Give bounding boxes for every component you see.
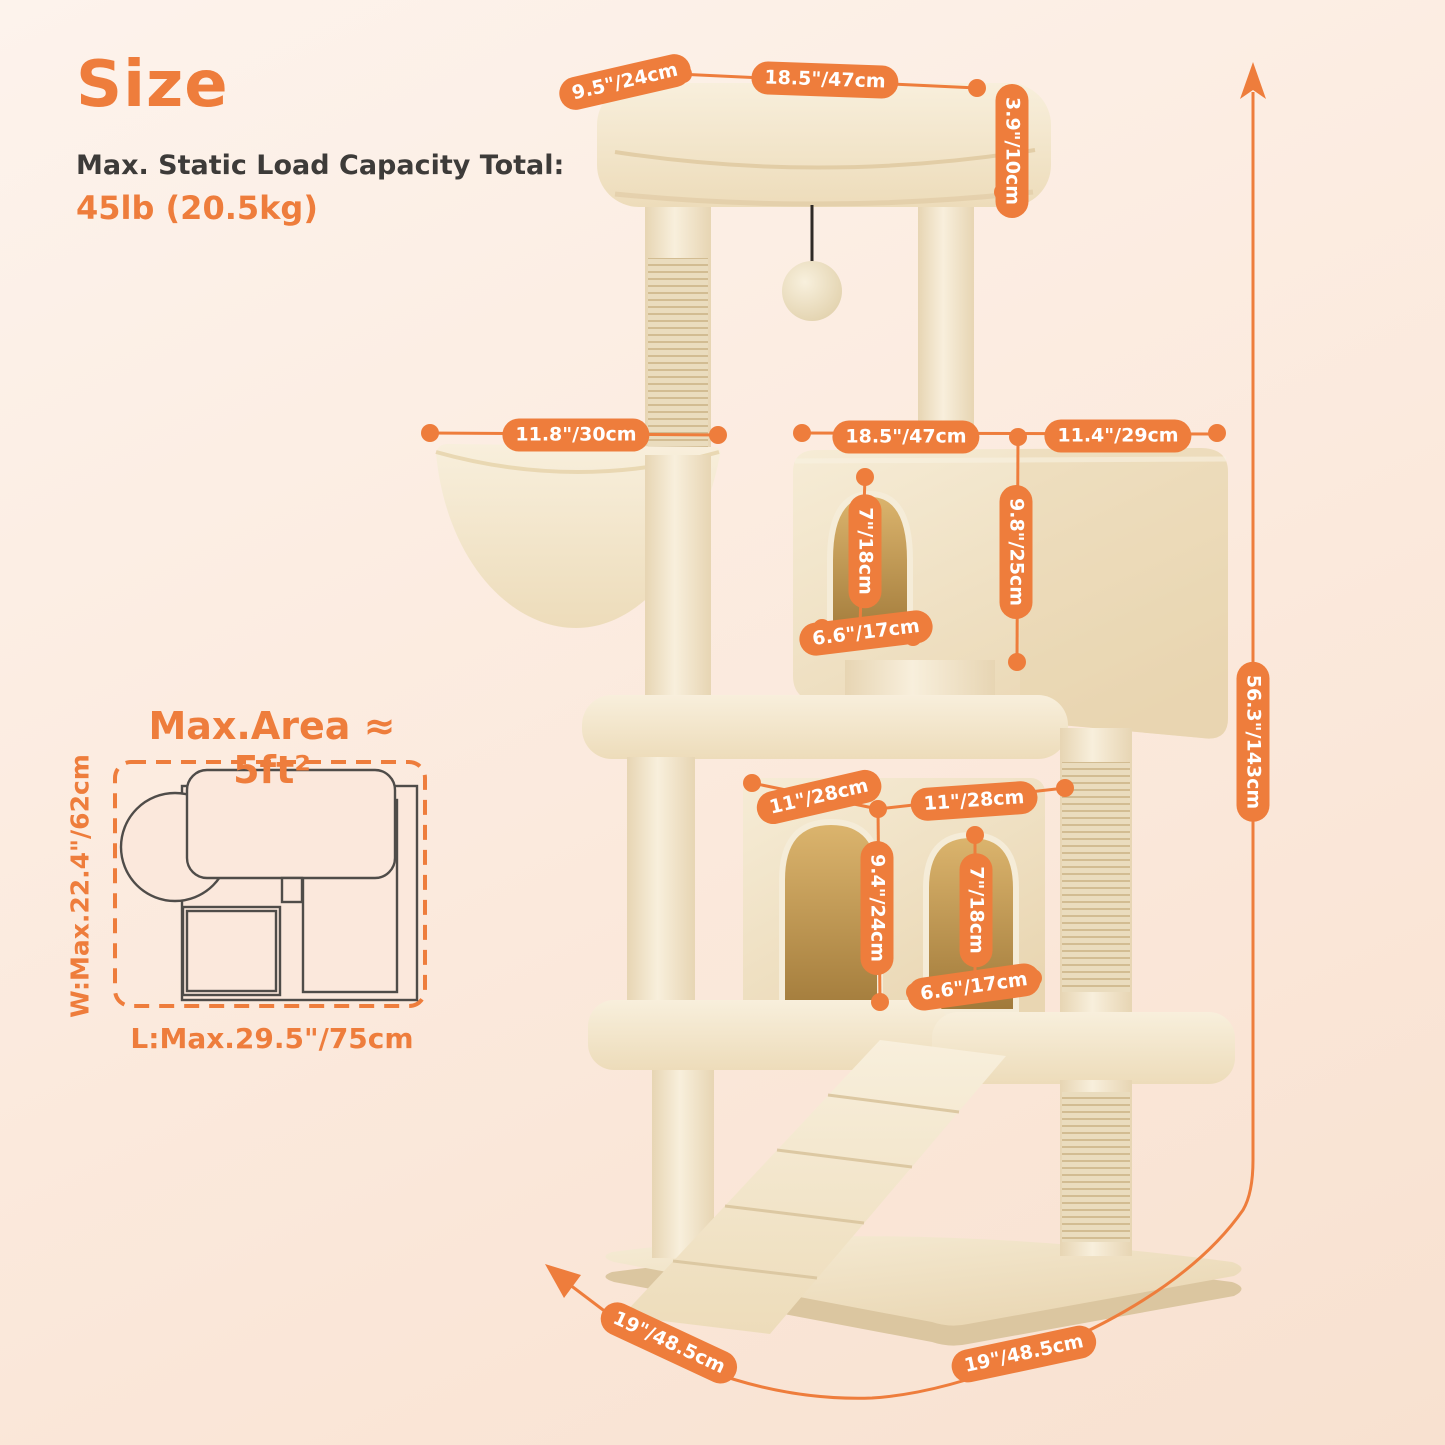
middle-platform	[582, 695, 1068, 759]
dim-total-height: 56.3"/143cm	[1237, 662, 1270, 822]
cat-tree	[436, 83, 1242, 1346]
top-perch	[597, 83, 1051, 207]
dim-basket-diameter: 11.8"/30cm	[502, 419, 649, 452]
mid-left-post	[627, 757, 695, 1015]
floorplan-width-label: W:Max.22.4"/62cm	[66, 754, 95, 1018]
dim-upper-condo-depth: 11.4"/29cm	[1044, 420, 1191, 453]
dim-upper-condo-width: 18.5"/47cm	[832, 421, 979, 454]
floorplan-title: Max.Area ≈ 5ft²	[115, 704, 429, 792]
dim-top-perch-width: 18.5"/47cm	[751, 61, 899, 99]
floorplan-lower-condo-inner	[187, 911, 276, 991]
diagonal-arrow-icon	[545, 1264, 581, 1298]
dim-upper-condo-height: 9.8"/25cm	[1000, 485, 1033, 619]
floorplan-length-label: L:Max.29.5"/75cm	[115, 1022, 429, 1055]
dim-lower-condo-height: 9.4"/24cm	[861, 841, 894, 975]
upper-condo-topline	[795, 459, 1226, 461]
right-post-sisal	[1062, 762, 1130, 992]
center-post	[645, 455, 711, 710]
floorplan-post-outline	[282, 878, 302, 902]
dim-lower-door-height: 7"/18cm	[960, 853, 993, 967]
dim-upper-door-height: 7"/18cm	[849, 494, 882, 608]
upper-condo-side	[1020, 448, 1228, 739]
base-right-post-sisal	[1062, 1092, 1130, 1242]
dim-top-perch-height: 3.9"/10cm	[996, 84, 1029, 218]
size-infographic: Size Max. Static Load Capacity Total: 45…	[0, 0, 1445, 1445]
upper-left-post-sisal	[648, 258, 708, 450]
toy-ball	[782, 261, 842, 321]
upper-right-post	[918, 195, 974, 455]
floor-plan-diagram	[115, 762, 425, 1006]
